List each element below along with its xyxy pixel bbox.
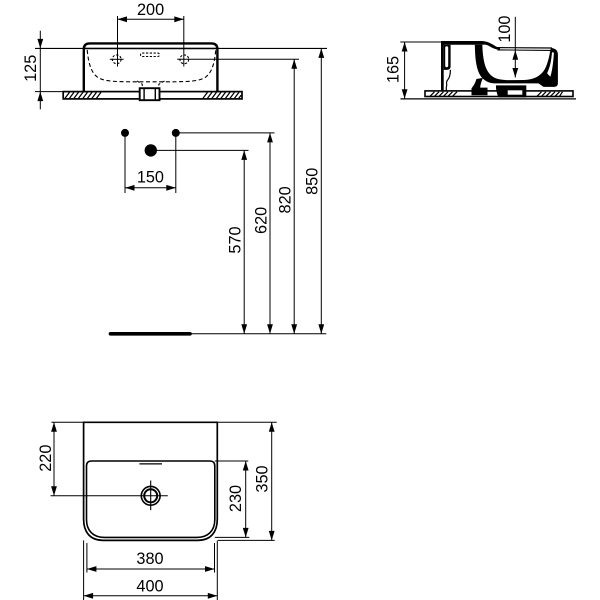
svg-text:400: 400 <box>136 578 163 596</box>
svg-text:220: 220 <box>37 445 55 472</box>
svg-text:165: 165 <box>385 56 403 83</box>
svg-text:350: 350 <box>254 465 272 492</box>
svg-text:850: 850 <box>304 168 322 195</box>
svg-text:230: 230 <box>227 485 245 512</box>
svg-text:150: 150 <box>137 169 164 187</box>
svg-text:380: 380 <box>136 550 163 568</box>
svg-text:100: 100 <box>496 16 514 43</box>
svg-text:620: 620 <box>252 207 270 234</box>
svg-text:200: 200 <box>137 1 164 19</box>
svg-text:570: 570 <box>227 226 245 253</box>
svg-text:820: 820 <box>277 186 295 213</box>
svg-text:125: 125 <box>22 55 40 82</box>
